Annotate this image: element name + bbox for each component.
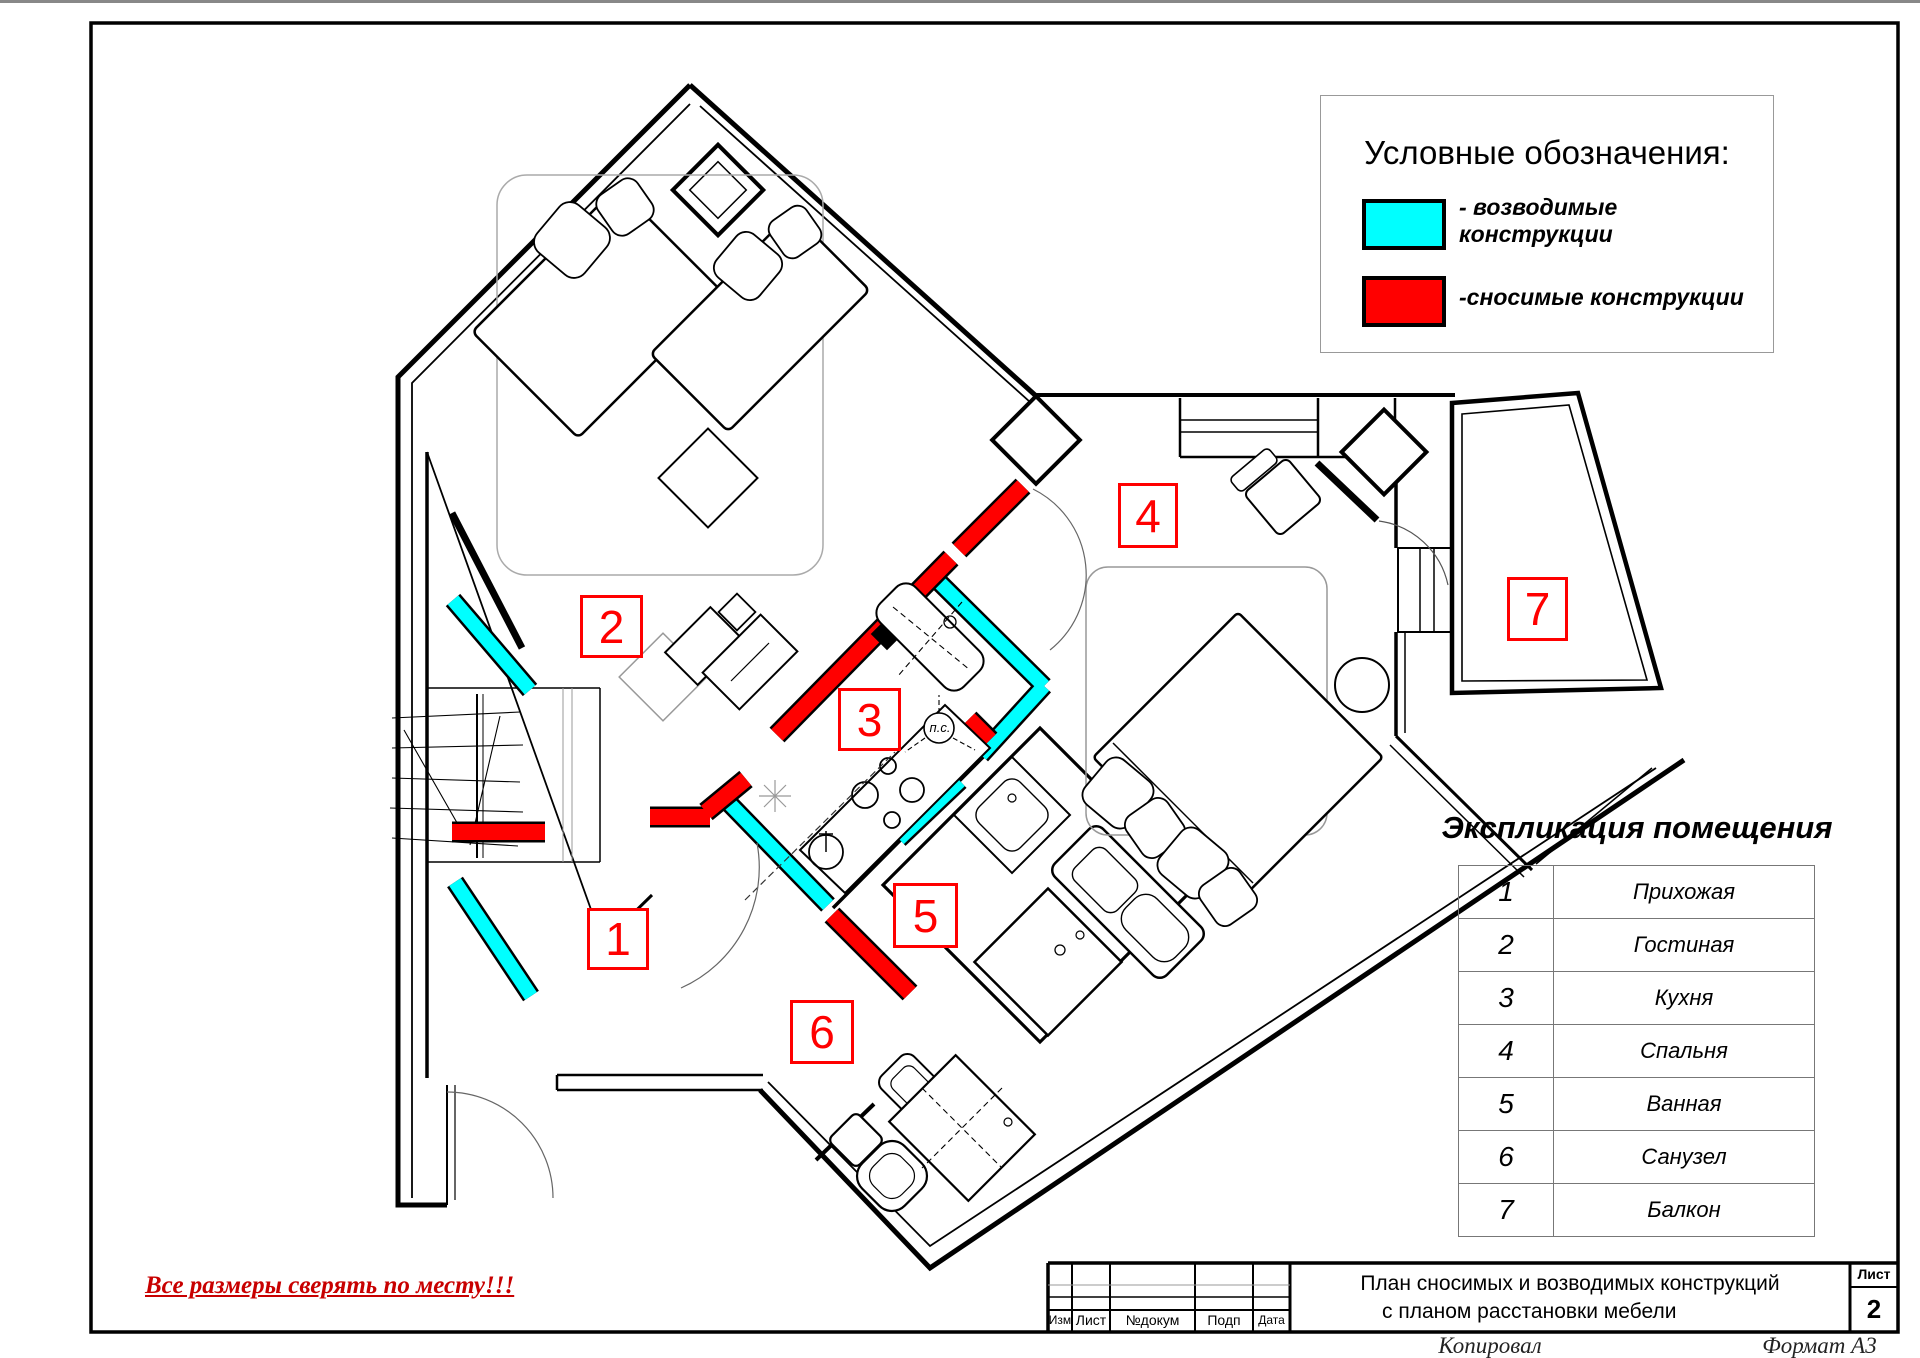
doc-title-line2: с планом расстановки мебели — [1300, 1300, 1840, 1324]
drawing-sheet: Условные обозначения: - возводимые конст… — [0, 0, 1920, 1358]
table-row: 4Спальня — [1459, 1025, 1815, 1078]
table-row: 1Прихожая — [1459, 866, 1815, 919]
note-text: Все размеры сверять по месту!!! — [145, 1272, 514, 1300]
end-table — [659, 429, 758, 528]
legend-swatch-demolished — [1362, 276, 1446, 327]
table-row: 3Кухня — [1459, 972, 1815, 1025]
tb-col-ndokum: №докум — [1110, 1312, 1195, 1328]
light-symbol — [759, 780, 791, 812]
legend-label-demolished: -сносимые конструкции — [1459, 276, 1744, 319]
room-label-7: 7 — [1507, 577, 1568, 641]
table-row: 7Балкон — [1459, 1184, 1815, 1237]
balcony-window — [1398, 548, 1452, 632]
sheet-number: 2 — [1850, 1294, 1898, 1325]
bed — [1093, 612, 1383, 902]
explication-table: 1Прихожая 2Гостиная 3Кухня 4Спальня 5Ван… — [1458, 865, 1815, 1237]
room-label-1: 1 — [587, 908, 649, 970]
balcony-walls — [1452, 393, 1661, 693]
tb-col-podp: Подп — [1195, 1312, 1253, 1328]
table-row: 6Санузел — [1459, 1131, 1815, 1184]
room-label-2: 2 — [580, 595, 643, 658]
legend: Условные обозначения: - возводимые конст… — [1320, 95, 1774, 353]
tb-col-izm: Изм — [1048, 1313, 1072, 1327]
side-table — [1335, 658, 1389, 712]
doc-title-line1: План сносимых и возводимых конструкций — [1300, 1272, 1840, 1296]
tb-col-data: Дата — [1253, 1313, 1290, 1327]
sheet-label: Лист — [1850, 1266, 1898, 1282]
room-label-3: 3 — [838, 688, 901, 751]
table-row: 2Гостиная — [1459, 919, 1815, 972]
living-room-furniture — [472, 174, 869, 721]
room-label-5: 5 — [893, 883, 958, 948]
towel-dryer-label: п.с. — [925, 720, 955, 735]
explication-title: Экспликация помещения — [1437, 810, 1837, 846]
room-label-6: 6 — [790, 1000, 854, 1064]
room-label-4: 4 — [1118, 483, 1178, 548]
legend-title: Условные обозначения: — [1321, 134, 1773, 172]
format-label: Формат А3 — [1737, 1333, 1902, 1358]
tb-col-list: Лист — [1072, 1312, 1110, 1328]
bathroom-sink — [954, 757, 1070, 873]
copied-label: Копировал — [1380, 1333, 1600, 1358]
table-row: 5Ванная — [1459, 1078, 1815, 1131]
legend-swatch-new — [1362, 199, 1446, 250]
legend-label-new: - возводимые конструкции — [1459, 199, 1773, 242]
